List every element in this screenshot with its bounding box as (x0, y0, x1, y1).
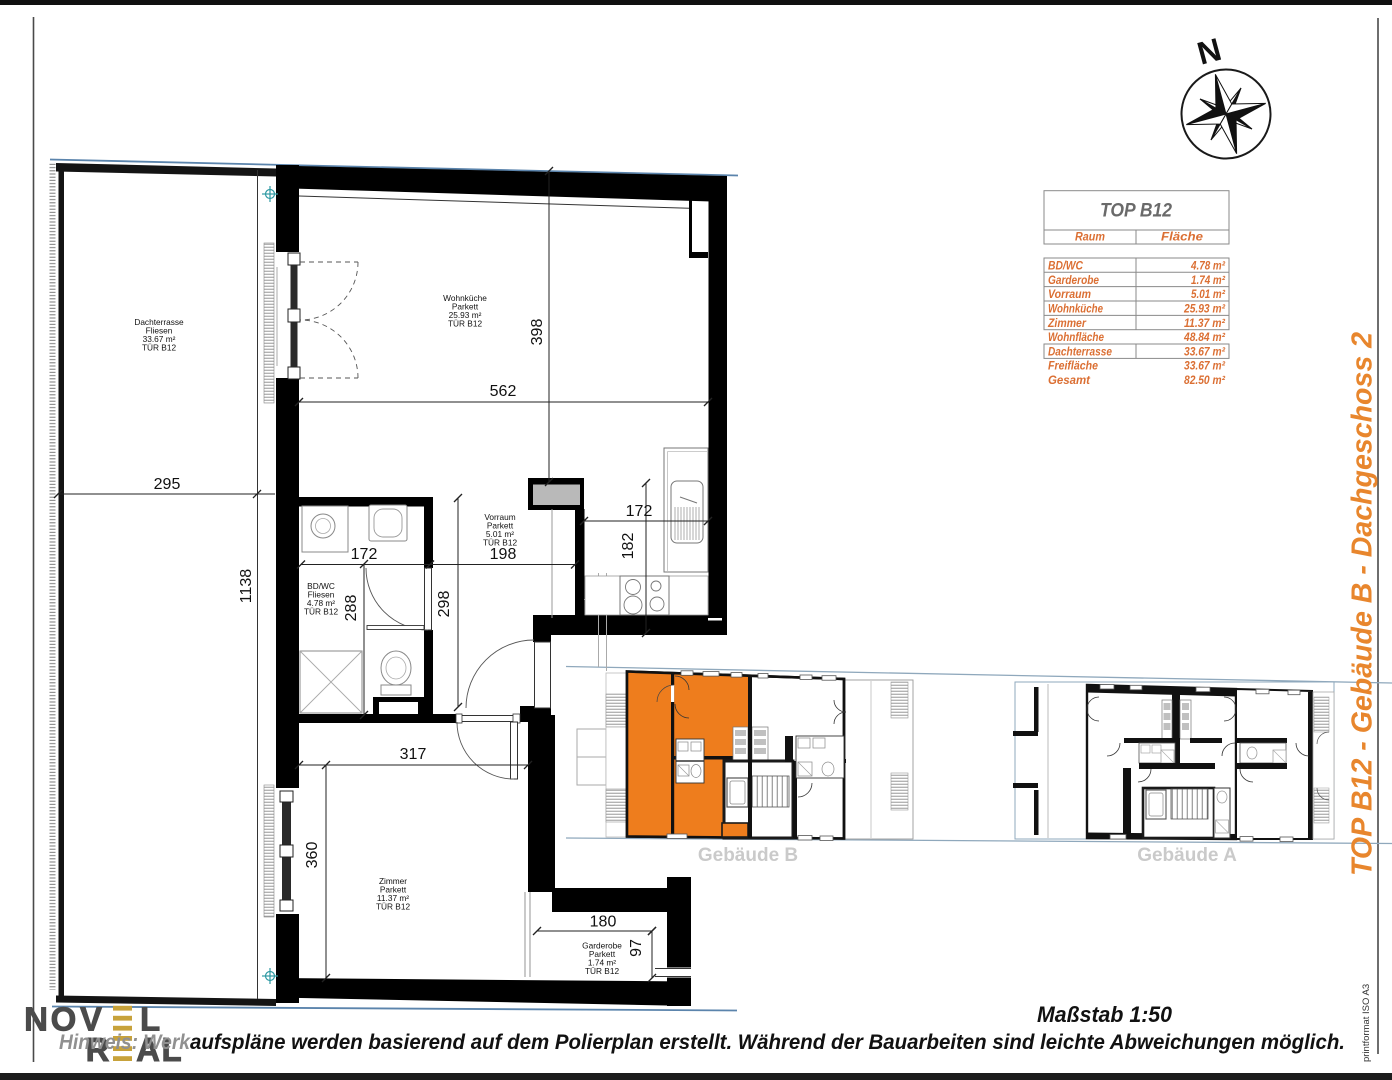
svg-text:Vorraum: Vorraum (1048, 287, 1091, 301)
svg-text:1138: 1138 (238, 569, 255, 604)
svg-text:BD/WC: BD/WC (1048, 259, 1084, 273)
svg-text:182: 182 (620, 533, 637, 560)
svg-text:288: 288 (343, 595, 360, 622)
svg-text:Maßstab 1:50: Maßstab 1:50 (1037, 1002, 1173, 1027)
svg-text:180: 180 (590, 914, 617, 931)
svg-text:198: 198 (490, 546, 517, 563)
svg-text:4.78 m²: 4.78 m² (1190, 259, 1226, 273)
svg-text:TÜR B12: TÜR B12 (585, 966, 620, 976)
svg-text:172: 172 (626, 503, 653, 520)
svg-text:Gebäude B: Gebäude B (698, 845, 798, 866)
svg-text:1.74 m²: 1.74 m² (1191, 273, 1226, 287)
svg-text:Raum: Raum (1075, 230, 1105, 244)
svg-text:TÜR B12: TÜR B12 (483, 538, 518, 548)
svg-text:33.67 m²: 33.67 m² (1184, 344, 1226, 358)
svg-text:Fläche: Fläche (1161, 230, 1203, 244)
svg-text:562: 562 (490, 383, 517, 400)
svg-text:Garderobe: Garderobe (1048, 273, 1099, 287)
svg-text:25.93 m²: 25.93 m² (1183, 301, 1226, 315)
svg-text:Gebäude A: Gebäude A (1137, 845, 1237, 866)
svg-text:Gesamt: Gesamt (1048, 373, 1091, 387)
svg-text:Freifläche: Freifläche (1048, 359, 1098, 373)
svg-text:N: N (1193, 31, 1225, 72)
svg-text:317: 317 (400, 746, 427, 763)
svg-text:Wohnfläche: Wohnfläche (1048, 330, 1104, 344)
svg-text:33.67 m²: 33.67 m² (1184, 359, 1226, 373)
svg-text:Dachterrasse: Dachterrasse (1048, 344, 1112, 358)
svg-text:Hinweis: Werk: Hinweis: Werk (59, 1031, 191, 1054)
svg-text:TÜR B12: TÜR B12 (142, 343, 177, 353)
svg-text:aufspläne werden basierend auf: aufspläne werden basierend auf dem Polie… (190, 1031, 1345, 1054)
svg-text:48.84 m²: 48.84 m² (1183, 330, 1226, 344)
svg-text:5.01 m²: 5.01 m² (1191, 287, 1226, 301)
svg-text:TÜR B12: TÜR B12 (448, 319, 483, 329)
svg-text:398: 398 (529, 319, 546, 346)
svg-text:172: 172 (351, 546, 378, 563)
svg-text:298: 298 (436, 591, 453, 618)
svg-text:TÜR B12: TÜR B12 (376, 902, 411, 912)
svg-text:97: 97 (628, 939, 645, 957)
svg-text:Zimmer: Zimmer (1047, 316, 1087, 330)
svg-text:360: 360 (304, 842, 321, 869)
svg-text:printformat ISO A3: printformat ISO A3 (1361, 984, 1372, 1062)
svg-text:295: 295 (154, 476, 181, 493)
svg-text:11.37 m²: 11.37 m² (1184, 316, 1226, 330)
svg-text:Wohnküche: Wohnküche (1048, 301, 1103, 315)
svg-text:N: N (24, 1001, 48, 1038)
svg-text:TOP B12 - Gebäude B - Dachgesc: TOP B12 - Gebäude B - Dachgeschoss 2 (1347, 332, 1379, 876)
svg-text:82.50 m²: 82.50 m² (1184, 373, 1226, 387)
svg-text:TOP B12: TOP B12 (1100, 201, 1172, 222)
svg-text:TÜR B12: TÜR B12 (304, 607, 339, 617)
